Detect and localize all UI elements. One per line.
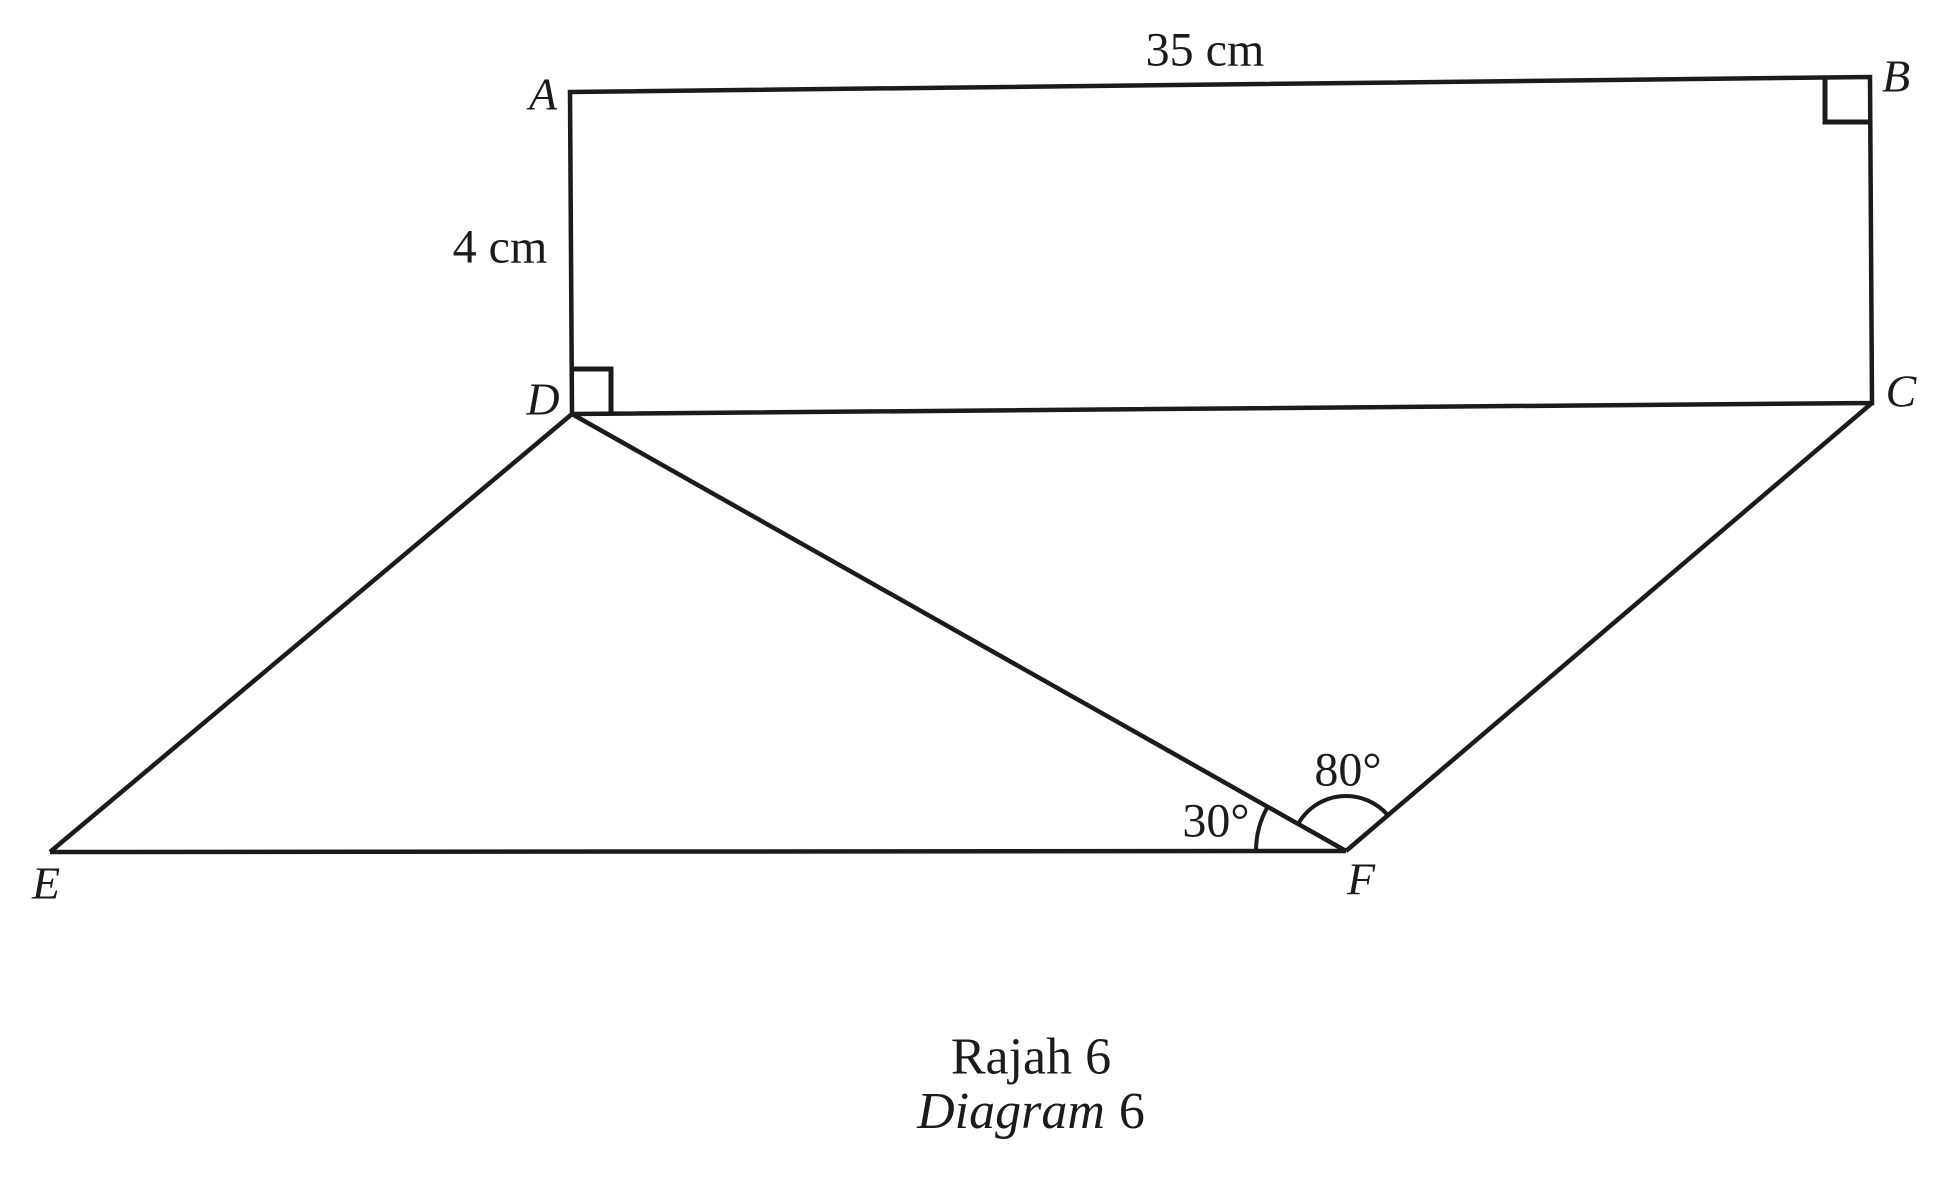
quadrilateral-abcd-outline <box>570 77 1872 414</box>
side-ad-length-label: 4 cm <box>453 221 548 274</box>
angle-arc-30-degrees <box>1256 807 1268 851</box>
right-angle-mark-d <box>570 369 611 413</box>
vertex-label-c: C <box>1886 366 1918 417</box>
scanned-diagram-page: A B C D E F 35 cm 4 cm 30° 80° Rajah 6 D… <box>0 0 1942 1179</box>
line-work <box>50 77 1872 852</box>
text-labels: A B C D E F 35 cm 4 cm 30° 80° Rajah 6 D… <box>31 24 1918 1140</box>
angle-dfe-label: 30° <box>1182 795 1249 848</box>
edge-cf <box>1346 403 1872 851</box>
edge-ef <box>50 851 1346 852</box>
vertex-label-e: E <box>31 858 60 909</box>
edge-df <box>572 414 1346 851</box>
edge-de <box>50 414 572 852</box>
vertex-label-a: A <box>526 69 558 120</box>
caption-malay: Rajah 6 <box>951 1029 1111 1086</box>
vertex-label-b: B <box>1882 51 1910 102</box>
vertex-label-f: F <box>1346 854 1376 905</box>
angle-arc-80-degrees <box>1298 796 1388 824</box>
caption-english-number: 6 <box>1119 1083 1145 1140</box>
vertex-label-d: D <box>525 374 559 425</box>
right-angle-mark-b <box>1825 78 1870 122</box>
geometry-figure: A B C D E F 35 cm 4 cm 30° 80° Rajah 6 D… <box>0 0 1942 1179</box>
caption-english: Diagram6 <box>916 1083 1145 1140</box>
angle-dfc-label: 80° <box>1314 744 1381 797</box>
caption-english-word: Diagram <box>916 1083 1105 1140</box>
side-ab-length-label: 35 cm <box>1146 24 1265 77</box>
